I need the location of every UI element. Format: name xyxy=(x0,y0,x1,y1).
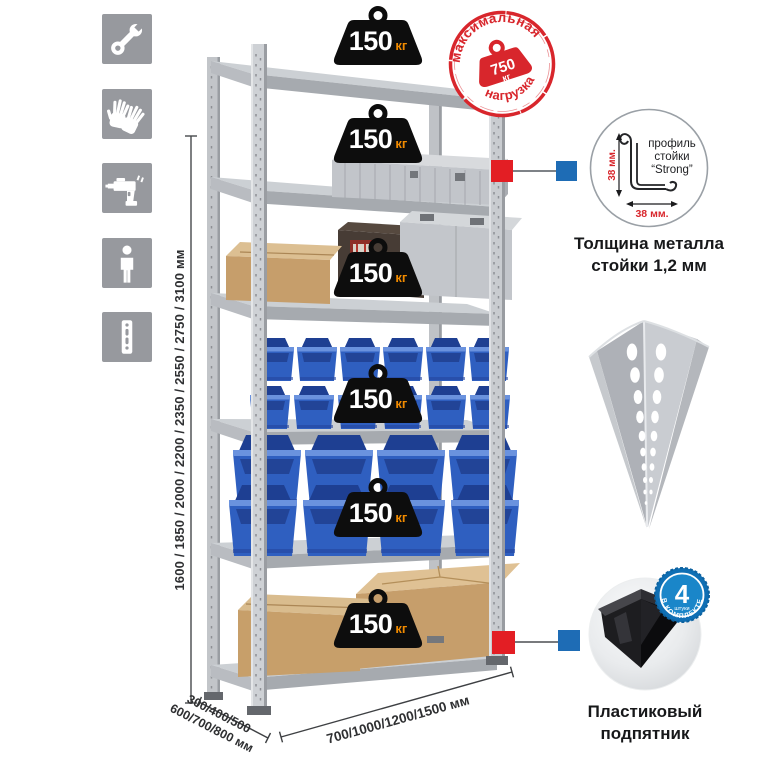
shelf-load-weight: 150кг xyxy=(323,104,433,180)
gloves-icon-tile xyxy=(102,89,152,139)
connector-blue-square-bottom xyxy=(558,630,580,651)
upright-angle-profile-image xyxy=(589,321,709,529)
load-label: 150кг xyxy=(323,386,433,413)
shelving-infographic: 150кг 150кг 150кг 150кг 150кг xyxy=(0,0,765,765)
profile-caption: Толщина металла стойки 1,2 мм xyxy=(556,233,742,278)
profile-dim-horizontal: 38 мм. xyxy=(635,208,668,220)
profile-label: профиль стойки “Strong” xyxy=(648,138,696,176)
drill-icon xyxy=(104,165,150,211)
load-label: 150кг xyxy=(323,500,433,527)
person-icon xyxy=(104,240,150,286)
connector-red-square-top xyxy=(491,160,513,182)
badge-sub: штуки xyxy=(674,606,689,612)
shelf-load-weight: 150кг xyxy=(323,6,433,82)
load-label: 150кг xyxy=(323,126,433,153)
svg-text:стойки: стойки xyxy=(654,151,689,163)
shelf-load-weight: 150кг xyxy=(323,238,433,314)
perforated-upright-icon xyxy=(104,314,150,360)
shelf-load-weight: 150кг xyxy=(323,364,433,440)
connector-red-square-bottom xyxy=(492,631,515,654)
profile-dim-vertical: 38 мм. xyxy=(607,149,618,181)
load-label: 150кг xyxy=(323,260,433,287)
drill-icon-tile xyxy=(102,163,152,213)
svg-text:“Strong”: “Strong” xyxy=(651,164,693,176)
foot-callout-connector xyxy=(492,630,580,654)
kit-quantity-badge: 4 штуки в комплекте xyxy=(653,566,711,624)
shelf-load-weight: 150кг xyxy=(323,589,433,665)
assembly-icon-tile xyxy=(102,14,152,64)
wrench-icon xyxy=(104,16,150,62)
svg-text:профиль: профиль xyxy=(648,138,696,150)
foot-caption: Пластиковый подпятник xyxy=(550,701,740,746)
person-icon-tile xyxy=(102,238,152,288)
height-dimension-label: 1600 / 1850 / 2000 / 2200 / 2350 / 2550 … xyxy=(172,135,187,705)
connector-blue-square-top xyxy=(556,161,577,181)
badge-value: 4 xyxy=(675,579,690,609)
load-label: 150кг xyxy=(323,611,433,638)
shelf-load-weight: 150кг xyxy=(323,478,433,554)
upright-icon-tile xyxy=(102,312,152,362)
work-gloves-icon xyxy=(104,91,150,137)
profile-detail-callout: 38 мм. 38 мм. профиль стойки “Strong” xyxy=(588,107,710,229)
load-label: 150кг xyxy=(323,28,433,55)
profile-callout-connector xyxy=(491,160,577,182)
